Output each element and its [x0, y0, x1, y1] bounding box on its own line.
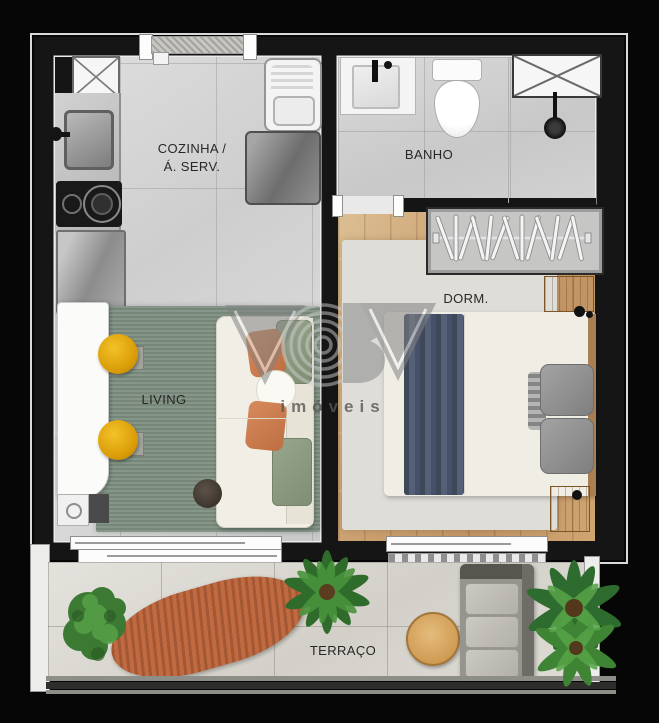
palm-plant-icon	[262, 542, 392, 647]
living-label-text: LIVING	[141, 392, 186, 407]
stool	[98, 420, 138, 460]
shower-divider	[508, 57, 509, 203]
living-label: LIVING	[134, 391, 194, 409]
bed-pillow	[540, 364, 594, 416]
plant-icon	[50, 572, 150, 672]
cooktop-icon	[56, 181, 122, 227]
kitchen-faucet-handle	[50, 127, 62, 141]
shaft-x-icon	[72, 56, 120, 98]
living-sliding-door-panel	[78, 549, 282, 563]
kitchen-label-line2: Á. SERV.	[164, 159, 221, 174]
bathroom-faucet-icon	[372, 60, 378, 82]
bath-door-jamb-left	[332, 195, 343, 217]
corner-unit	[57, 494, 89, 526]
kitchen-sink-icon	[64, 110, 114, 170]
toilet-tank	[432, 59, 482, 81]
shaft-x-icon	[512, 54, 602, 98]
watermark-brand: imóveis	[280, 397, 385, 416]
shower-head-icon	[544, 117, 566, 139]
bedroom-label-text: DORM.	[443, 291, 488, 306]
bathroom-door-opening	[336, 196, 400, 214]
nightstand-decor	[586, 311, 593, 318]
duvet-fold-line	[464, 314, 465, 494]
terrace-table	[406, 612, 460, 666]
entry-jamb-right	[243, 34, 257, 60]
corner-unit-dark	[89, 494, 109, 523]
kitchen-label: COZINHA / Á. SERV.	[142, 140, 242, 176]
washing-machine	[245, 131, 321, 205]
bathroom-faucet-dot	[384, 61, 392, 69]
bath-door-jamb-right	[393, 195, 404, 217]
stool	[98, 334, 138, 374]
nightstand-decor	[574, 306, 585, 317]
closet-hangers-icon	[428, 209, 602, 273]
side-pouf	[193, 479, 222, 508]
watermark-brand-text: imóveis	[263, 397, 403, 417]
palm-plant-icon	[514, 548, 644, 698]
nightstand	[544, 276, 594, 312]
nightstand-lamp-icon	[572, 490, 582, 500]
entry-door-leaf	[153, 52, 169, 65]
bed-pillow	[540, 418, 594, 474]
nightstand	[550, 486, 590, 532]
kitchen-label-line1: COZINHA /	[158, 141, 227, 156]
bathroom-label-text: BANHO	[405, 147, 453, 162]
living-table	[57, 302, 109, 498]
laundry-tank	[264, 58, 322, 132]
bathroom-label: BANHO	[394, 146, 464, 164]
floor-plan: COZINHA / Á. SERV. BANHO	[0, 0, 659, 723]
living-sliding-door	[70, 536, 282, 550]
terrace-wall-left	[30, 544, 50, 692]
